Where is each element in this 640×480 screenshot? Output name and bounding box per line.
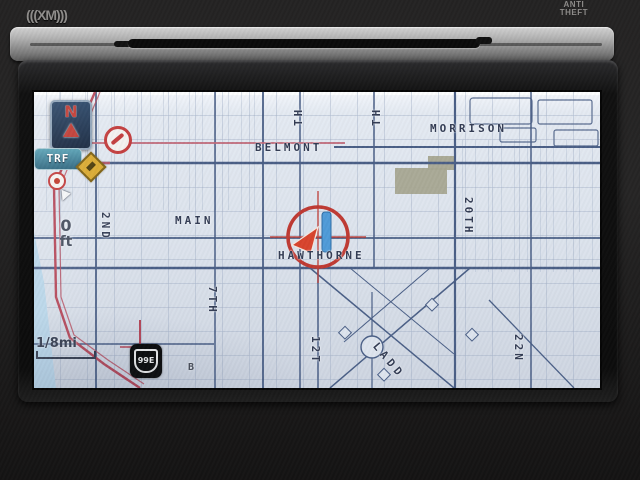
street-label-morrison: MORRISON xyxy=(430,122,507,135)
street-grid-dense-east xyxy=(454,140,600,272)
distance-readout: 0 ft xyxy=(44,218,88,250)
distance-value: 0 xyxy=(44,218,88,234)
cd-slot[interactable] xyxy=(10,27,614,61)
route-99e-shield-text: 99E xyxy=(134,349,158,373)
map-scale-bar xyxy=(36,351,96,359)
distance-unit: ft xyxy=(44,234,88,250)
route-flag xyxy=(322,212,331,252)
street-label-partial-th-1: TH xyxy=(292,107,305,126)
compass-n-letter: N xyxy=(52,102,90,122)
navigation-map-screen[interactable]: BELMONT MORRISON MAIN HAWTHORNE 2ND 20TH… xyxy=(34,92,600,388)
street-label-22nd: 22N xyxy=(512,334,525,363)
poi-marker-b: B xyxy=(188,362,194,373)
street-label-hawthorne: HAWTHORNE xyxy=(278,249,365,262)
street-label-12th: 12T xyxy=(309,336,322,365)
street-label-main: MAIN xyxy=(175,214,214,227)
compass-north-indicator[interactable]: N xyxy=(50,100,92,150)
cd-slot-notch-right xyxy=(476,37,492,44)
street-label-20th: 20TH xyxy=(462,197,475,236)
anti-theft-line2: THEFT xyxy=(560,9,588,17)
map-scale-label: 1/8mi xyxy=(36,336,77,351)
compass-arrow-icon xyxy=(63,123,79,137)
anti-theft-label: ANTI THEFT xyxy=(560,1,588,17)
xm-radio-logo: (((XM))) xyxy=(26,7,67,23)
street-label-2nd: 2ND xyxy=(99,212,112,241)
street-label-partial-th-2: TH xyxy=(370,107,383,126)
traffic-incident-icon xyxy=(104,126,132,154)
map-scale[interactable]: 1/8mi xyxy=(36,336,96,359)
route-99e-shield-icon: 99E xyxy=(130,344,162,378)
building-block xyxy=(395,168,447,194)
street-label-belmont: BELMONT xyxy=(255,141,322,154)
car-head-unit: (((XM))) ANTI THEFT xyxy=(0,0,640,480)
street-label-7th: 7TH xyxy=(206,286,219,315)
cd-slot-opening[interactable] xyxy=(128,39,480,48)
